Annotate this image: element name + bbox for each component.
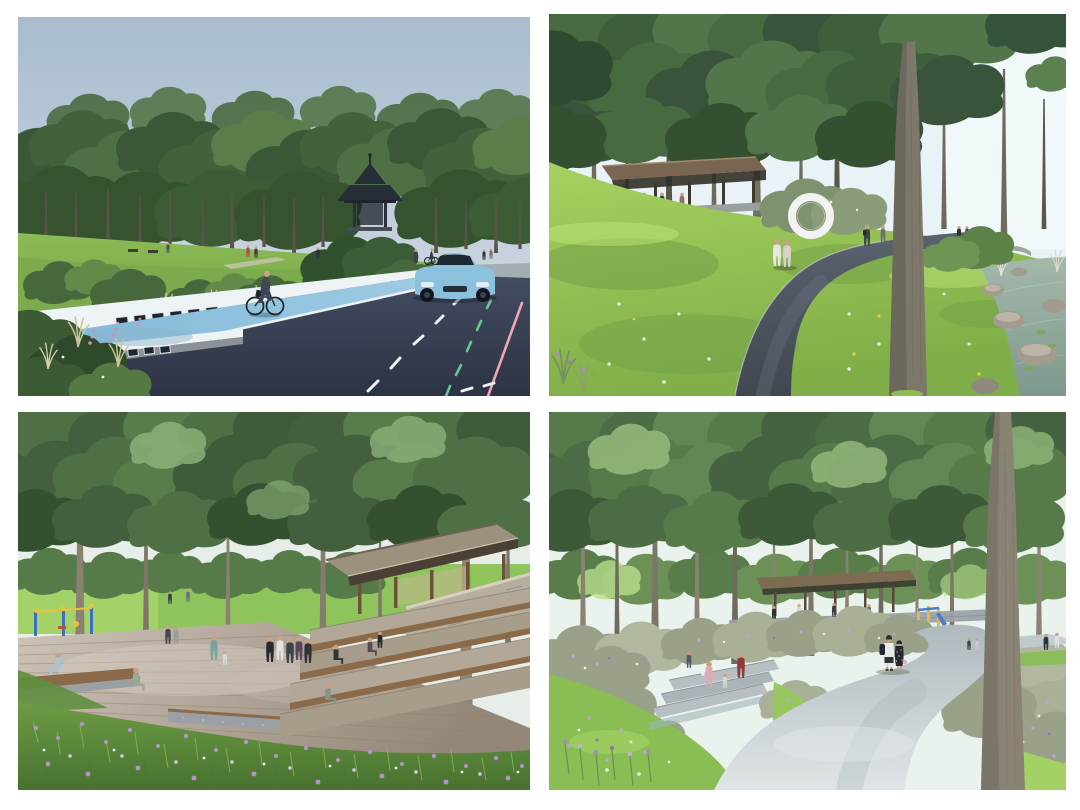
render-board [0,0,1080,810]
tree-line-canopy [18,86,530,250]
panel-forest-walk [549,14,1066,396]
panel-deck-plaza [18,412,530,790]
panel-winding-path [549,412,1066,790]
path-highlight [774,726,914,762]
panel-road-greenway [18,17,530,396]
